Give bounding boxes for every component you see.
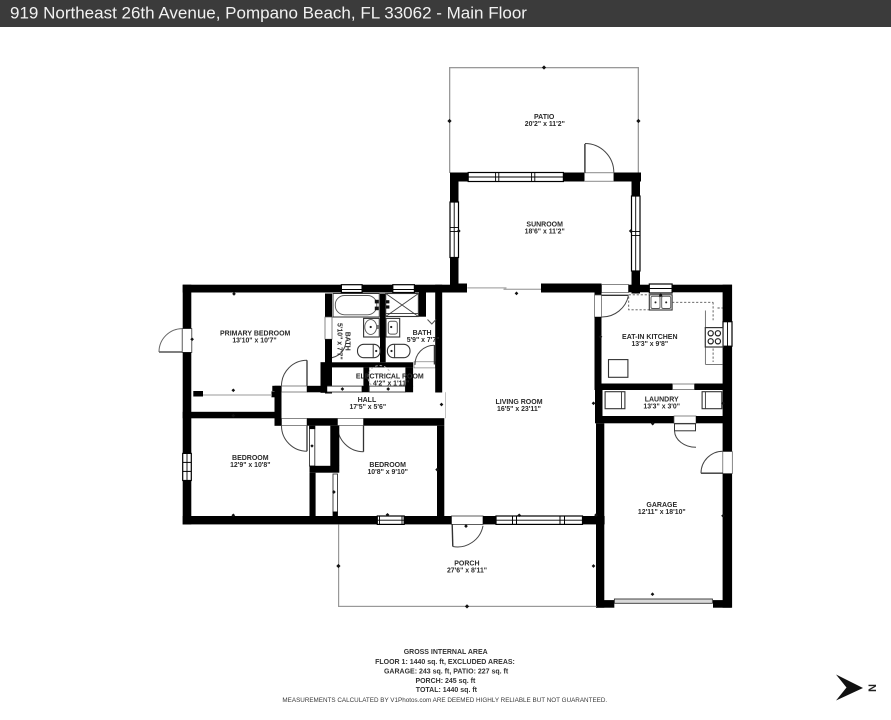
svg-text:TOTAL: 1440 sq. ft: TOTAL: 1440 sq. ft — [416, 687, 478, 694]
svg-text:HALL: HALL — [358, 397, 377, 404]
svg-text:PORCH: 245 sq. ft: PORCH: 245 sq. ft — [415, 678, 476, 685]
svg-text:PORCH: PORCH — [454, 561, 479, 568]
svg-text:5'10" x 7'7": 5'10" x 7'7" — [336, 323, 343, 360]
svg-text:GROSS INTERNAL AREA: GROSS INTERNAL AREA — [404, 649, 488, 656]
svg-text:ELECTRICAL ROOM: ELECTRICAL ROOM — [356, 373, 424, 380]
svg-text:MEASUREMENTS CALCULATED BY V1P: MEASUREMENTS CALCULATED BY V1Photos.com … — [282, 697, 607, 704]
svg-text:17'5" x 5'6": 17'5" x 5'6" — [349, 404, 386, 411]
svg-text:LAUNDRY: LAUNDRY — [645, 396, 679, 403]
svg-text:GARAGE: GARAGE — [646, 502, 677, 509]
svg-text:BATH: BATH — [344, 332, 351, 351]
svg-text:16'5" x 23'11": 16'5" x 23'11" — [497, 406, 541, 413]
svg-text:BEDROOM: BEDROOM — [232, 455, 269, 462]
svg-text:SUNROOM: SUNROOM — [526, 221, 563, 228]
svg-text:5'9" x 7'7": 5'9" x 7'7" — [407, 337, 440, 344]
svg-text:18'6" x 11'2": 18'6" x 11'2" — [525, 228, 565, 235]
svg-text:13'10" x 10'7": 13'10" x 10'7" — [232, 338, 276, 345]
svg-text:10'8" x 9'10": 10'8" x 9'10" — [367, 469, 407, 476]
svg-text:12'11" x 18'10": 12'11" x 18'10" — [638, 509, 686, 516]
svg-text:12'9" x 10'8": 12'9" x 10'8" — [230, 462, 270, 469]
svg-text:4'2" x 1'11": 4'2" x 1'11" — [373, 380, 409, 387]
svg-text:EAT-IN KITCHEN: EAT-IN KITCHEN — [622, 334, 677, 341]
svg-text:BEDROOM: BEDROOM — [369, 462, 406, 469]
svg-text:PATIO: PATIO — [534, 114, 555, 121]
svg-text:13'3" x 9'8": 13'3" x 9'8" — [631, 341, 668, 348]
svg-text:N: N — [866, 684, 878, 692]
svg-text:919 Northeast 26th Avenue, Pom: 919 Northeast 26th Avenue, Pompano Beach… — [10, 4, 527, 23]
svg-text:GARAGE: 243 sq. ft, PATIO: 227: GARAGE: 243 sq. ft, PATIO: 227 sq. ft — [384, 669, 509, 676]
svg-text:BATH: BATH — [413, 330, 432, 337]
svg-text:FLOOR 1: 1440 sq. ft, EXCLUDED: FLOOR 1: 1440 sq. ft, EXCLUDED AREAS: — [375, 659, 515, 666]
svg-text:13'3" x 3'0": 13'3" x 3'0" — [643, 403, 680, 410]
svg-text:27'6" x 8'11": 27'6" x 8'11" — [447, 568, 487, 575]
svg-text:20'2" x 11'2": 20'2" x 11'2" — [525, 121, 565, 128]
